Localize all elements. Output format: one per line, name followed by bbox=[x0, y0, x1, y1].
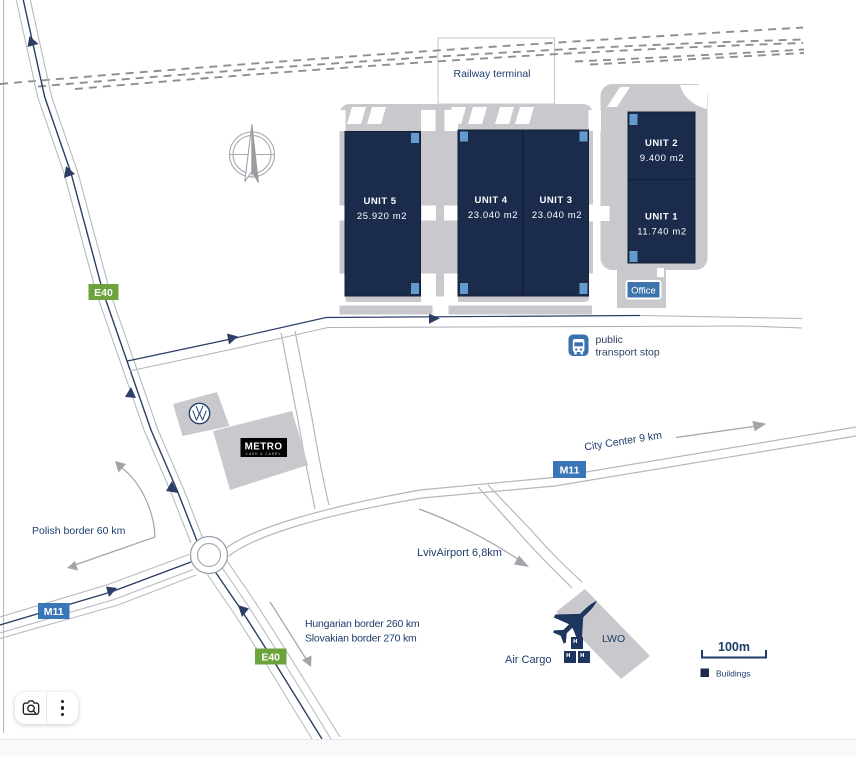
svg-text:Air Cargo: Air Cargo bbox=[505, 654, 551, 666]
svg-text:25.920 m2: 25.920 m2 bbox=[357, 211, 407, 222]
svg-text:Polish border 60 km: Polish border 60 km bbox=[32, 525, 126, 537]
svg-text:23.040 m2: 23.040 m2 bbox=[532, 210, 582, 221]
svg-text:UNIT 2: UNIT 2 bbox=[645, 138, 678, 149]
svg-text:LWO: LWO bbox=[602, 633, 625, 645]
svg-text:UNIT 4: UNIT 4 bbox=[474, 195, 507, 206]
svg-text:100m: 100m bbox=[718, 640, 750, 654]
svg-text:Buildings: Buildings bbox=[716, 669, 751, 679]
svg-text:9.400 m2: 9.400 m2 bbox=[640, 153, 684, 164]
svg-text:METRO: METRO bbox=[245, 442, 283, 453]
svg-text:Office: Office bbox=[631, 286, 656, 297]
svg-text:UNIT 3: UNIT 3 bbox=[539, 195, 572, 206]
svg-text:Slovakian border 270 km: Slovakian border 270 km bbox=[305, 633, 417, 645]
svg-text:public: public bbox=[596, 334, 623, 346]
svg-text:M11: M11 bbox=[560, 465, 580, 477]
svg-text:CASH & CARRY: CASH & CARRY bbox=[246, 452, 282, 456]
svg-text:transport stop: transport stop bbox=[596, 347, 660, 359]
svg-text:UNIT 5: UNIT 5 bbox=[363, 196, 396, 207]
svg-text:M11: M11 bbox=[44, 606, 64, 618]
svg-text:LvivAirport 6,8km: LvivAirport 6,8km bbox=[417, 547, 502, 559]
svg-text:23.040 m2: 23.040 m2 bbox=[468, 210, 518, 221]
svg-text:Railway terminal: Railway terminal bbox=[453, 68, 530, 80]
svg-text:E40: E40 bbox=[261, 652, 280, 664]
svg-text:UNIT 1: UNIT 1 bbox=[645, 212, 678, 223]
svg-text:Hungarian border 260 km: Hungarian border 260 km bbox=[305, 618, 420, 630]
svg-text:11.740 m2: 11.740 m2 bbox=[637, 227, 687, 238]
svg-text:E40: E40 bbox=[94, 287, 113, 299]
